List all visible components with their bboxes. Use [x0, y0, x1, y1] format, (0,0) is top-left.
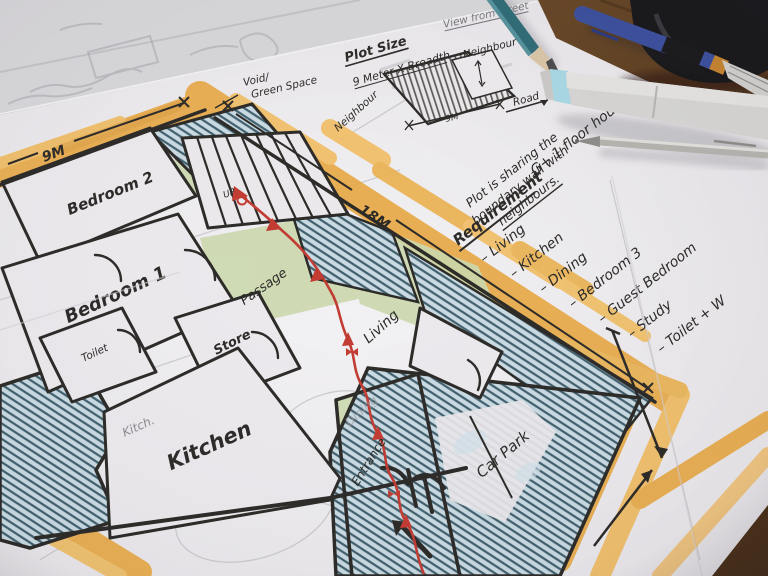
vignette	[0, 0, 768, 576]
photo-of-floorplan-sketch: Bedroom 2 Bedroom 1 Toilet Store Kitchen…	[0, 0, 768, 576]
sketch-photo: Bedroom 2 Bedroom 1 Toilet Store Kitchen…	[0, 0, 768, 576]
